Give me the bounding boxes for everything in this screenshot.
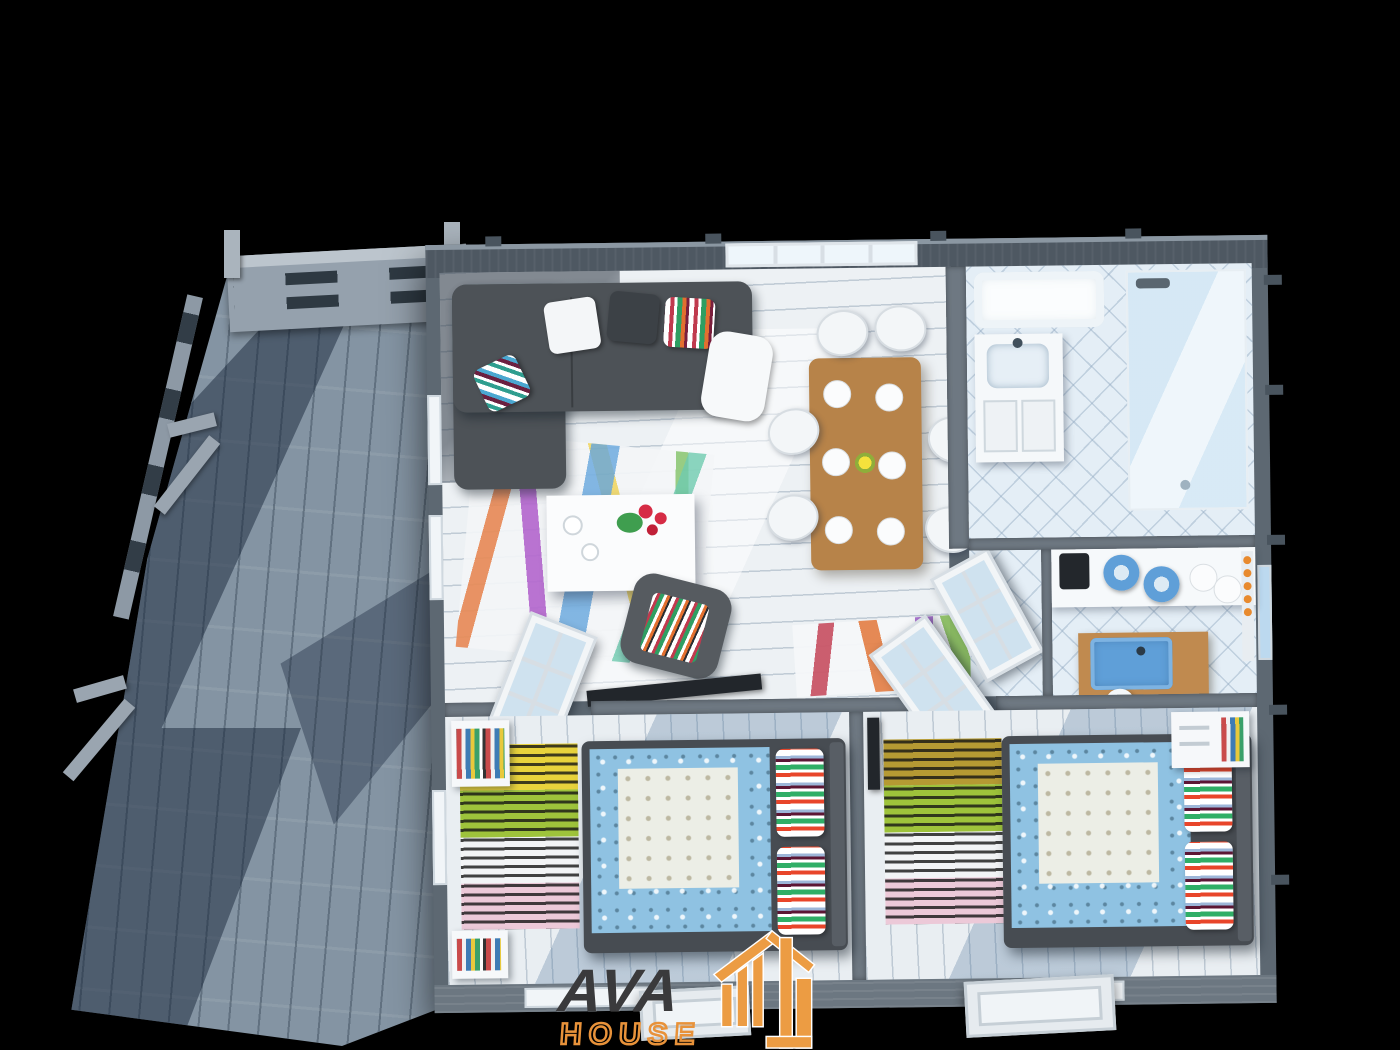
dining-bath-wall xyxy=(946,267,969,549)
bathtub xyxy=(974,271,1105,329)
blue-pot xyxy=(1103,554,1139,590)
bed2-pillow-striped xyxy=(1185,841,1234,930)
red-flower xyxy=(655,512,667,524)
plate xyxy=(878,451,906,479)
pillow-red-green-striped xyxy=(663,297,716,350)
living-west-window-2 xyxy=(429,515,444,600)
log-notch xyxy=(1265,385,1283,395)
spice-jar xyxy=(1243,569,1251,577)
terrace-deck xyxy=(55,245,465,1050)
bed-1 xyxy=(581,738,848,953)
log-notch xyxy=(1264,275,1282,285)
rug-patch-green xyxy=(884,784,1003,832)
plate-stack xyxy=(1213,575,1241,603)
front-steps xyxy=(964,974,1117,1038)
shower-drain xyxy=(1180,480,1190,490)
log-notch xyxy=(485,236,501,246)
entry-kitchen-wall xyxy=(1041,550,1053,696)
bathroom-vanity xyxy=(974,333,1064,462)
shower xyxy=(1126,269,1249,510)
kitchen xyxy=(1051,547,1257,695)
bedroom1-bookshelf xyxy=(451,720,510,787)
white-throw-blanket xyxy=(698,329,775,424)
drawer-handle xyxy=(1179,742,1209,746)
yellow-flower-centerpiece xyxy=(852,450,878,476)
spice-jar xyxy=(1244,595,1252,603)
plate xyxy=(875,383,903,411)
log-notch xyxy=(1125,228,1141,238)
rug-patch-green xyxy=(460,790,579,838)
log-notch xyxy=(1267,535,1285,545)
drawer-handle xyxy=(1179,726,1209,730)
log-notch xyxy=(705,234,721,244)
bedroom-2 xyxy=(863,707,1260,980)
armchair xyxy=(616,569,736,683)
plank-house-icon xyxy=(710,924,830,1050)
spice-jar xyxy=(1244,608,1252,616)
pillow-teal-striped xyxy=(471,353,532,414)
rug-patch-white xyxy=(461,836,580,884)
bathroom-sink xyxy=(987,344,1050,389)
bed2-sheet-fold xyxy=(1038,762,1159,883)
shower-glass-panel xyxy=(1126,269,1249,510)
rug-patch-pink xyxy=(885,877,1004,925)
spice-rack xyxy=(1241,551,1254,661)
bed1-sheet-fold xyxy=(618,767,739,888)
cup xyxy=(563,515,583,535)
bathroom xyxy=(966,263,1255,538)
books xyxy=(1221,717,1244,761)
log-notch xyxy=(1271,875,1289,885)
log-notch xyxy=(930,231,946,241)
kitchen-east-window xyxy=(1257,565,1272,660)
tv-bedroom2 xyxy=(867,718,880,790)
blue-pot xyxy=(1143,566,1179,602)
sofa xyxy=(452,281,754,413)
bed2-headboard xyxy=(1235,737,1251,941)
striped-blanket xyxy=(639,592,710,664)
wall-plank xyxy=(752,953,763,1027)
front-steps-tread xyxy=(977,986,1103,1026)
red-flower xyxy=(639,504,653,518)
logo-text: AVA HOUSE xyxy=(560,964,702,1050)
plate xyxy=(877,517,905,545)
log-notch xyxy=(1269,705,1287,715)
bed1-pillow-striped xyxy=(776,748,825,837)
faucet xyxy=(1013,338,1023,348)
railing-slot-row xyxy=(233,264,454,288)
dining-chair xyxy=(813,306,873,361)
railing-post xyxy=(224,230,240,278)
bed2-duvet-blue-floral xyxy=(1009,742,1191,928)
books xyxy=(456,728,505,779)
vanity-door xyxy=(1021,399,1056,451)
spice-jar xyxy=(1243,556,1251,564)
pillow-white xyxy=(543,296,602,355)
living-room xyxy=(440,267,951,703)
deck-brace-cap xyxy=(73,675,127,703)
plate xyxy=(825,516,853,544)
dining-table xyxy=(809,357,924,570)
bed1-duvet-blue-floral xyxy=(590,747,772,933)
shower-head xyxy=(1136,278,1170,288)
dining-chair xyxy=(872,302,929,354)
kitchen-sink-blue xyxy=(1090,637,1173,690)
plate xyxy=(822,448,850,476)
rug-patch-olive xyxy=(883,738,1002,786)
scene: AVA HOUSE xyxy=(0,0,1400,1050)
base-plank xyxy=(766,1036,812,1048)
dining-window xyxy=(725,241,917,267)
bedroom1-nightstand xyxy=(452,930,509,979)
faucet xyxy=(1136,646,1145,655)
logo-house-text: HOUSE xyxy=(559,1020,703,1050)
living-west-window xyxy=(427,395,442,485)
rug-patch-pink xyxy=(461,882,580,930)
bed1-pillow-striped xyxy=(777,846,826,935)
kitchen-counter xyxy=(1051,547,1256,607)
wall-plank xyxy=(737,965,748,1027)
logo-ava-text: AVA xyxy=(552,964,709,1018)
coffee-machine xyxy=(1059,553,1089,589)
bedroom2-rug xyxy=(883,738,1003,924)
plate xyxy=(823,380,851,408)
rug-patch-white xyxy=(885,831,1004,879)
logo: AVA HOUSE xyxy=(560,924,830,1050)
spice-jar xyxy=(1244,582,1252,590)
bedroom2-dresser xyxy=(1171,711,1250,768)
house-plan xyxy=(425,235,1276,1013)
tall-plank xyxy=(779,938,792,1048)
wall-plank xyxy=(721,984,732,1027)
kitchen-island xyxy=(1078,632,1209,696)
pillow-dark-gray xyxy=(606,290,660,344)
cup xyxy=(581,543,599,561)
books xyxy=(457,938,501,971)
red-flower xyxy=(647,524,658,535)
bedroom1-west-window xyxy=(432,790,447,885)
bed1-headboard xyxy=(829,742,845,946)
railing-slot-row xyxy=(234,288,455,312)
vanity-door xyxy=(983,400,1018,452)
